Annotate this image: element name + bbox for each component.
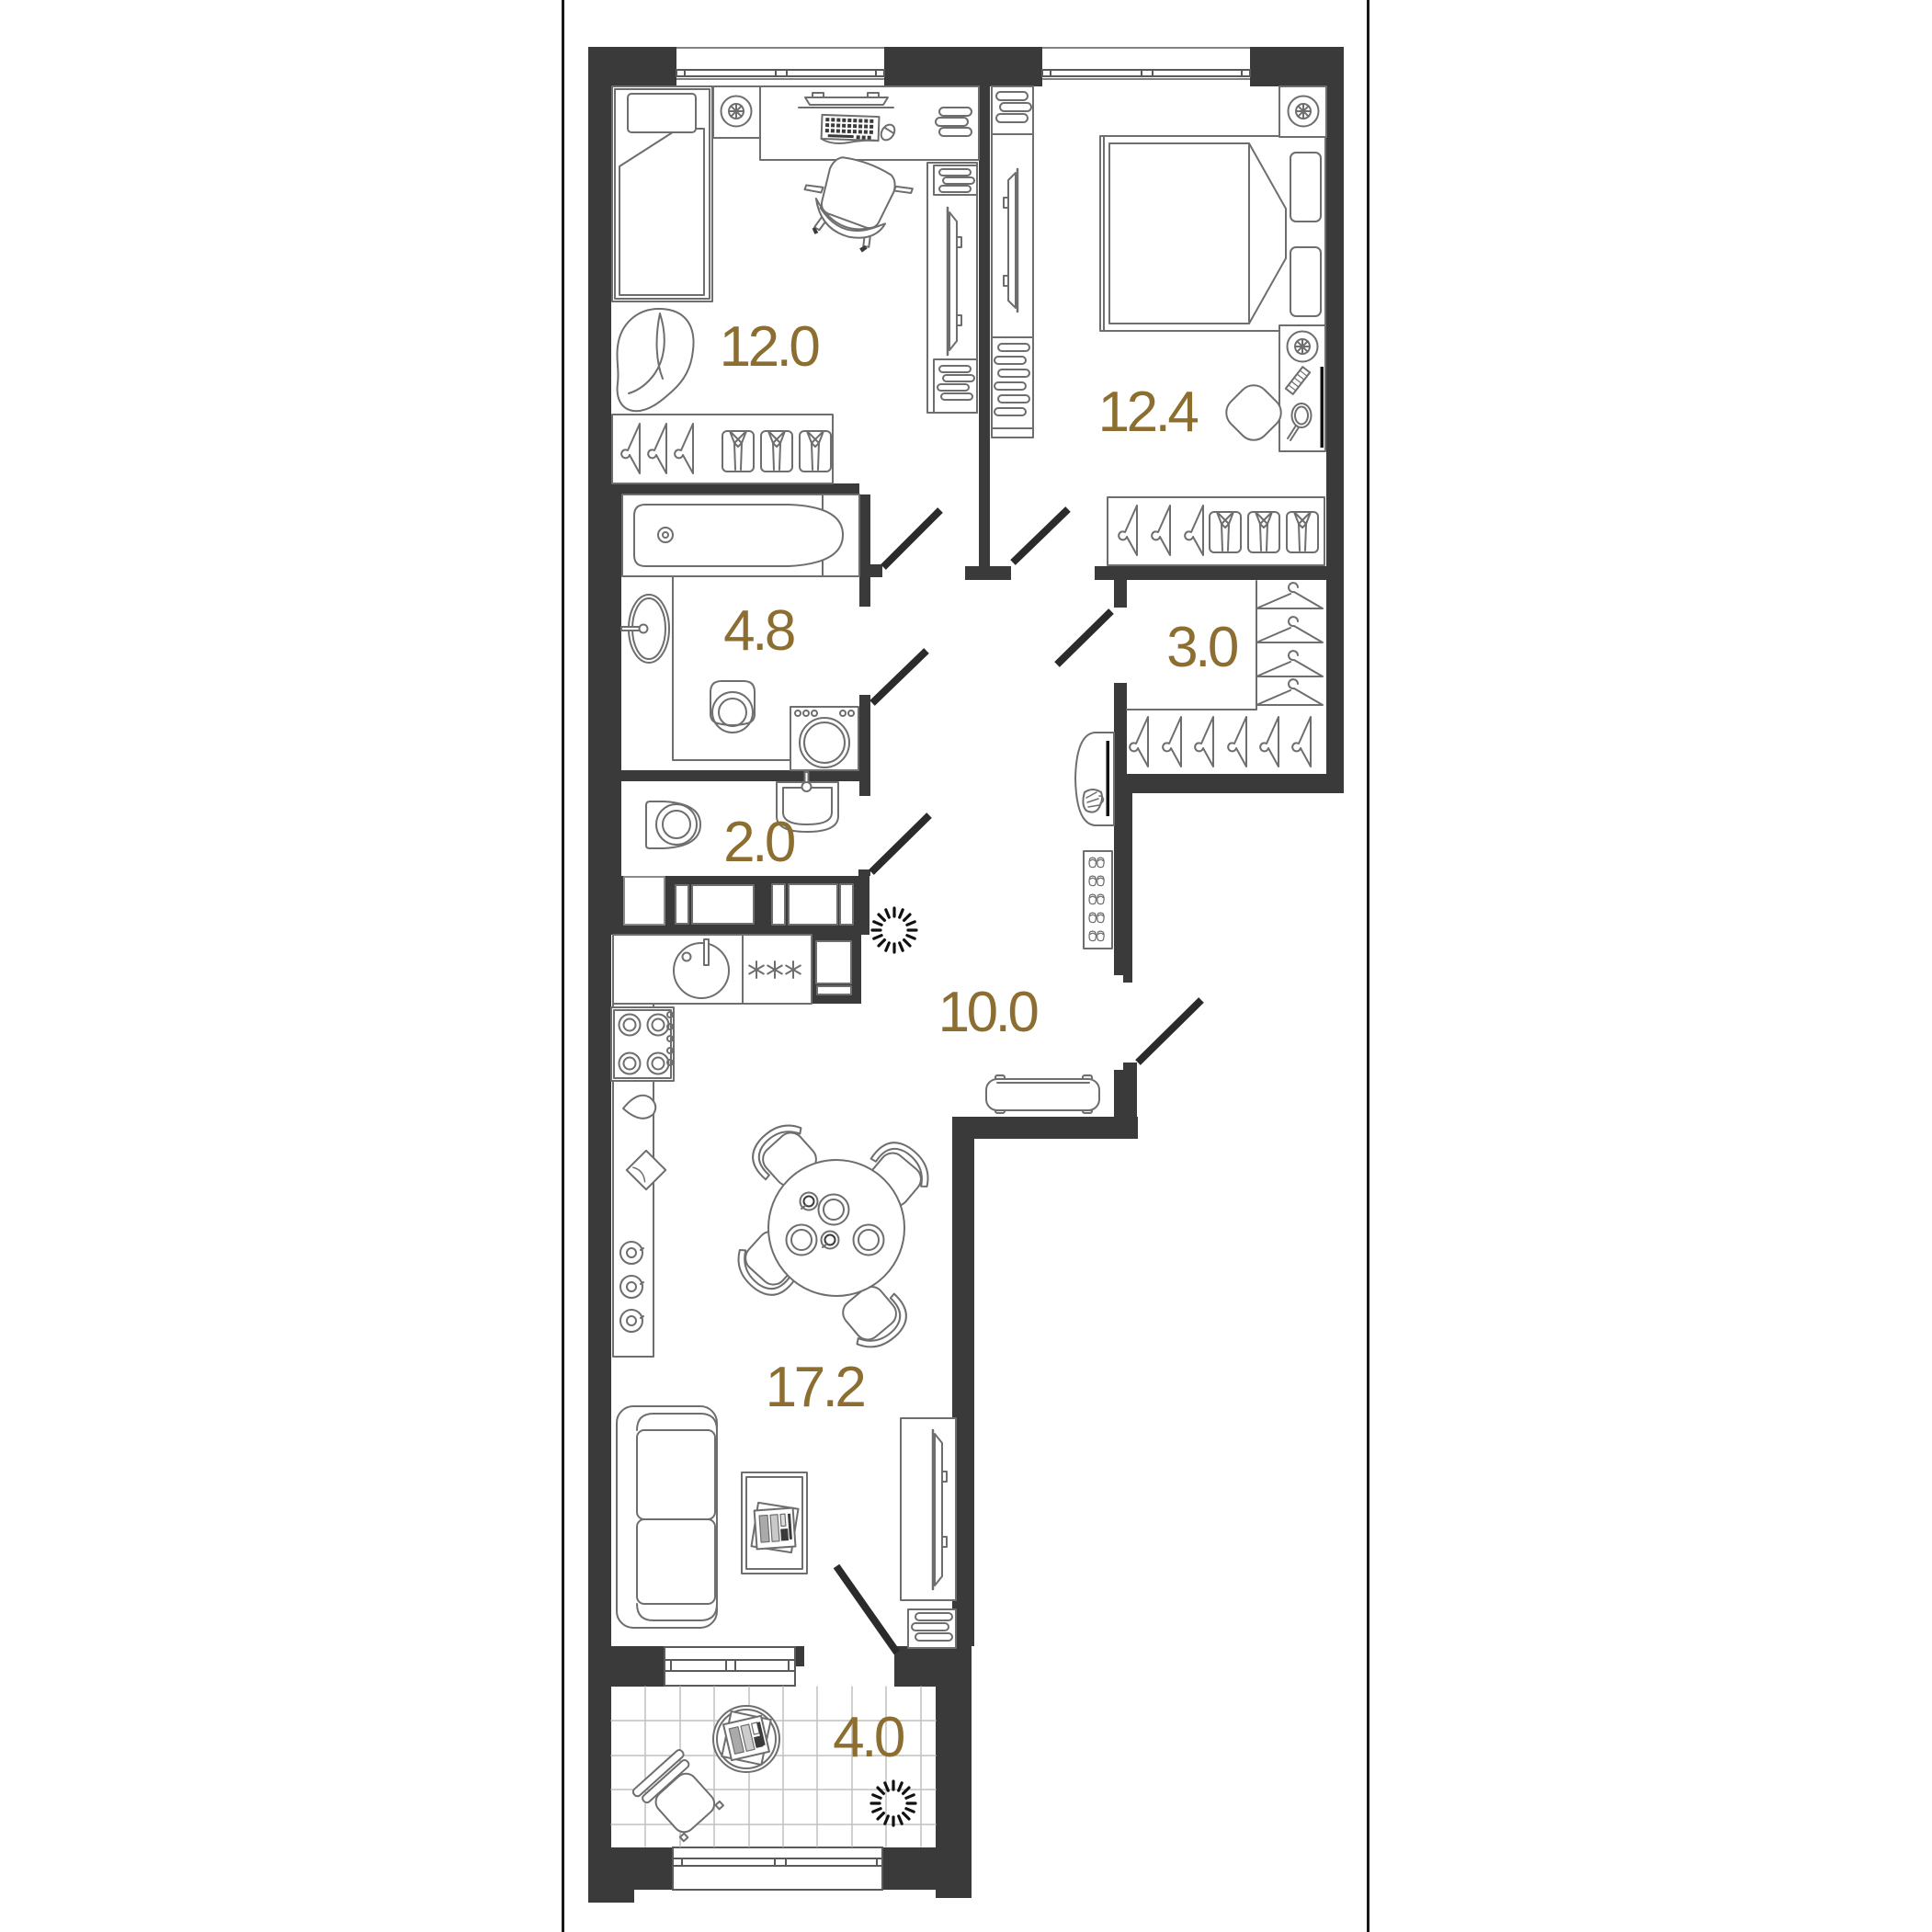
svg-text:3.0: 3.0 xyxy=(1166,616,1238,679)
svg-text:12.4: 12.4 xyxy=(1098,381,1199,444)
svg-text:2.0: 2.0 xyxy=(723,811,795,874)
svg-text:4.8: 4.8 xyxy=(723,599,794,663)
svg-text:10.0: 10.0 xyxy=(938,981,1039,1044)
svg-text:4.0: 4.0 xyxy=(833,1706,904,1769)
svg-text:12.0: 12.0 xyxy=(720,315,820,379)
svg-text:17.2: 17.2 xyxy=(766,1356,865,1419)
